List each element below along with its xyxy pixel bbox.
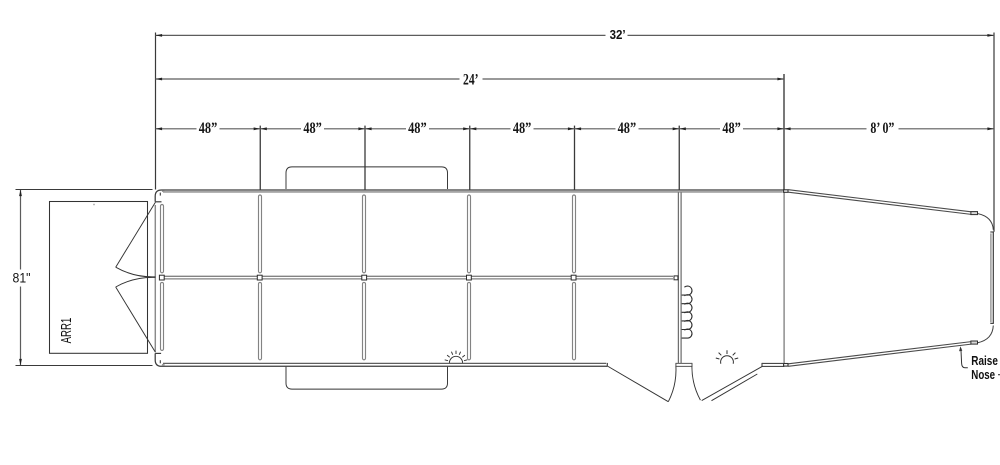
svg-text:48”: 48” <box>722 120 741 137</box>
svg-text:48”: 48” <box>199 120 218 137</box>
svg-text:Raise: Raise <box>971 354 998 368</box>
svg-text:81": 81" <box>13 269 31 285</box>
svg-text:24’: 24’ <box>463 71 479 88</box>
svg-text:8’ 0”: 8’ 0” <box>870 120 894 137</box>
svg-text:48”: 48” <box>303 120 322 137</box>
svg-text:Nose: Nose <box>971 368 995 382</box>
svg-text:48”: 48” <box>618 120 637 137</box>
svg-text:48”: 48” <box>408 120 427 137</box>
svg-text:32’: 32’ <box>610 27 626 42</box>
svg-text:48”: 48” <box>513 120 532 137</box>
svg-text:ARR1: ARR1 <box>58 318 75 344</box>
